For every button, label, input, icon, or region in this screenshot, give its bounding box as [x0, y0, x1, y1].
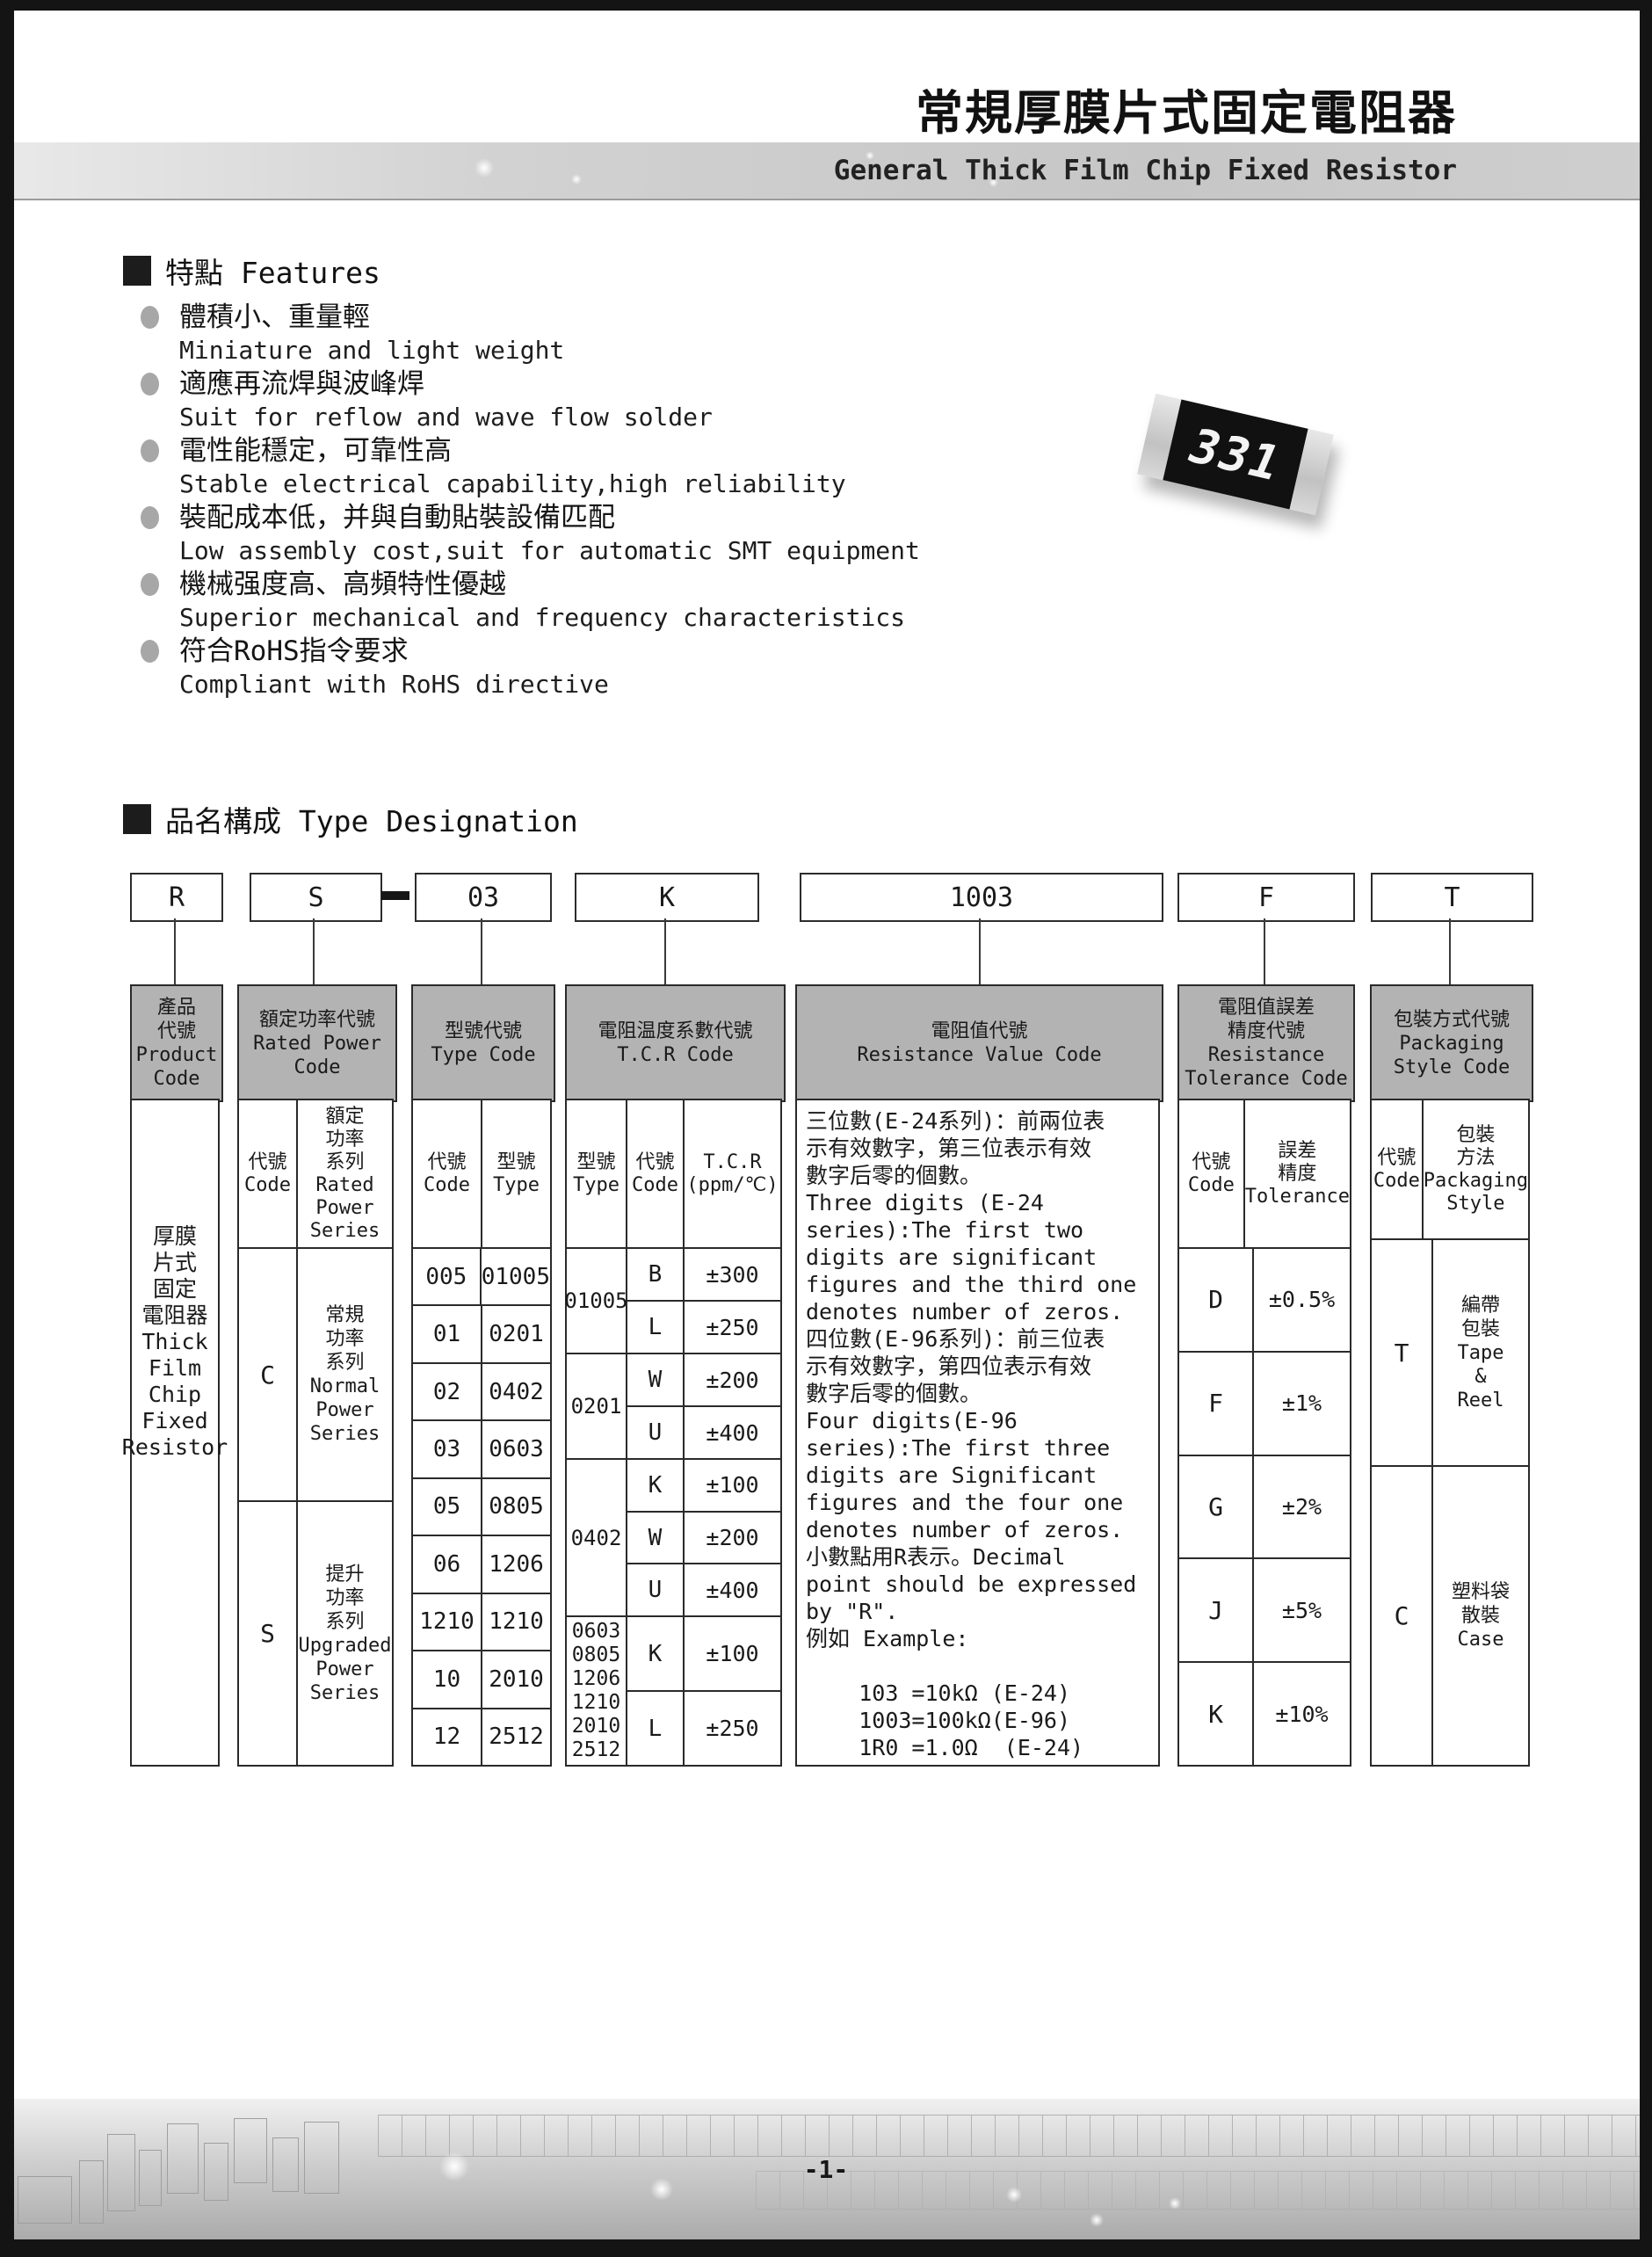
connector-line [1449, 918, 1451, 986]
col-body-tcr: 型號 Type 代號 Code T.C.R (ppm/℃) 01005 B ±3… [565, 1099, 782, 1767]
code-box-power: S [250, 873, 382, 922]
col-header-product: 產品 代號 Product Code [130, 984, 223, 1102]
tcr-value: ±100 [685, 1617, 780, 1690]
tcr-code: U [627, 1564, 685, 1615]
bullet-icon [141, 573, 159, 596]
list-item: 電性能穩定，可靠性高 Stable electrical capability,… [123, 434, 967, 501]
sparkle-dot [475, 158, 494, 178]
col-header-tolerance: 電阻值誤差 精度代號 Resistance Tolerance Code [1177, 984, 1355, 1102]
table-row: U ±400 [627, 1405, 780, 1458]
tcr-code: W [627, 1354, 685, 1405]
code-box-packaging: T [1371, 873, 1533, 922]
tcr-sub-type: 型號 Type [567, 1100, 627, 1247]
tolerance-code: F [1179, 1353, 1254, 1455]
code-box-tcr: K [575, 873, 759, 922]
tolerance-sub-tol: 誤差 精度 Tolerance [1245, 1100, 1350, 1247]
dash-separator [381, 891, 409, 900]
table-row: F ±1% [1179, 1351, 1350, 1455]
tcr-sub-value: T.C.R (ppm/℃) [685, 1100, 780, 1247]
connector-line [979, 918, 981, 986]
table-row: 12 2512 [413, 1708, 550, 1765]
tcr-type: 0402 [567, 1460, 627, 1615]
page-number: -1- [0, 2155, 1652, 2184]
type-code: 02 [413, 1364, 482, 1419]
datasheet-page: 常規厚膜片式固定電阻器 General Thick Film Chip Fixe… [0, 0, 1652, 2257]
tcr-type: 0201 [567, 1354, 627, 1458]
col-body-packaging: 代號 Code 包裝 方法 Packaging Style T 編帶 包裝 Ta… [1370, 1099, 1530, 1767]
bullet-icon [141, 373, 159, 396]
tolerance-value: ±10% [1254, 1663, 1350, 1765]
section-square-icon [123, 804, 151, 834]
tolerance-code: K [1179, 1663, 1254, 1765]
chip-resistor-image: 331 [1137, 394, 1334, 515]
connector-line [174, 918, 176, 986]
type-size: 01005 [482, 1249, 550, 1304]
table-row: 02 0402 [413, 1362, 550, 1419]
type-size: 0805 [482, 1479, 550, 1535]
table-row: J ±5% [1179, 1557, 1350, 1661]
tcr-code: U [627, 1407, 685, 1458]
tcr-value: ±300 [685, 1249, 780, 1300]
table-row: 10 2010 [413, 1650, 550, 1707]
bullet-icon [141, 306, 159, 329]
sparkle-dot [1006, 2187, 1022, 2203]
type-subheader-row: 代號 Code 型號 Type [413, 1100, 550, 1247]
table-row: 06 1206 [413, 1535, 550, 1592]
col-body-type: 代號 Code 型號 Type 005 01005 01 0201 02 040… [411, 1099, 552, 1767]
features-list: 體積小、重量輕 Miniature and light weight 適應再流焊… [123, 301, 967, 701]
features-heading-label: 特點 Features [165, 250, 380, 292]
chip-marking: 331 [1180, 418, 1291, 490]
packaging-style: 塑料袋 散裝 Case [1433, 1467, 1528, 1765]
table-row: D ±0.5% [1179, 1247, 1350, 1351]
power-series: 常規 功率 系列 Normal Power Series [298, 1249, 392, 1500]
feature-zh: 電性能穩定，可靠性高 [179, 434, 452, 468]
col-header-packaging: 包裝方式代號 Packaging Style Code [1370, 984, 1533, 1102]
packaging-code: C [1372, 1467, 1433, 1765]
type-code: 05 [413, 1479, 482, 1535]
tolerance-value: ±0.5% [1254, 1249, 1350, 1351]
power-sub-series: 額定 功率 系列 Rated Power Series [298, 1100, 392, 1247]
type-code: 06 [413, 1536, 482, 1592]
type-code: 03 [413, 1421, 482, 1477]
tolerance-value: ±1% [1254, 1353, 1350, 1455]
type-code: 10 [413, 1651, 482, 1707]
list-item: 適應再流焊與波峰焊 Suit for reflow and wave flow … [123, 367, 967, 434]
tcr-value: ±400 [685, 1564, 780, 1615]
code-box-product: R [130, 873, 223, 922]
tcr-value: ±400 [685, 1407, 780, 1458]
connector-line [1264, 918, 1265, 986]
power-code: C [239, 1249, 298, 1500]
type-designation-heading-label: 品名構成 Type Designation [165, 798, 578, 840]
sparkle-dot [1090, 2213, 1104, 2227]
tcr-code: K [627, 1460, 685, 1511]
table-row: K ±100 [627, 1617, 780, 1690]
type-size: 0201 [482, 1306, 550, 1361]
chip-body: 331 [1163, 400, 1308, 510]
connector-line [481, 918, 482, 986]
table-row: C 常規 功率 系列 Normal Power Series [239, 1247, 392, 1500]
type-code: 01 [413, 1306, 482, 1361]
packaging-code: T [1372, 1240, 1433, 1465]
bullet-icon [141, 640, 159, 663]
table-row: 03 0603 [413, 1419, 550, 1477]
packaging-sub-code: 代號 Code [1372, 1100, 1424, 1238]
type-code: 12 [413, 1709, 482, 1765]
code-box-type: 03 [415, 873, 552, 922]
footer-deco-ladder [378, 2115, 1652, 2157]
power-code: S [239, 1502, 298, 1765]
tolerance-value: ±2% [1254, 1456, 1350, 1558]
tcr-value: ±200 [685, 1354, 780, 1405]
tolerance-code: J [1179, 1559, 1254, 1661]
tcr-code: L [627, 1302, 685, 1353]
feature-en: Stable electrical capability,high reliab… [179, 468, 846, 501]
tcr-subheader-row: 型號 Type 代號 Code T.C.R (ppm/℃) [567, 1100, 780, 1247]
power-series: 提升 功率 系列 Upgraded Power Series [298, 1502, 392, 1765]
connector-line [664, 918, 666, 986]
tcr-group: 0603 0805 1206 1210 2010 2512 K ±100 L ±… [567, 1615, 780, 1765]
bullet-icon [141, 439, 159, 462]
tcr-group: 0201 W ±200 U ±400 [567, 1353, 780, 1458]
tcr-sub-code: 代號 Code [627, 1100, 685, 1247]
connector-line [313, 918, 315, 986]
type-sub-type: 型號 Type [482, 1100, 550, 1247]
type-code: 005 [413, 1249, 482, 1304]
tcr-type: 01005 [567, 1249, 627, 1353]
table-row: C 塑料袋 散裝 Case [1372, 1465, 1528, 1765]
table-row: 01 0201 [413, 1304, 550, 1361]
feature-en: Miniature and light weight [179, 334, 564, 367]
feature-en: Suit for reflow and wave flow solder [179, 401, 713, 434]
list-item: 裝配成本低，并與自動貼裝設備匹配 Low assembly cost,suit … [123, 501, 967, 568]
feature-zh: 體積小、重量輕 [179, 301, 370, 334]
feature-zh: 裝配成本低，并與自動貼裝設備匹配 [179, 501, 615, 534]
sparkle-dot [571, 174, 582, 185]
table-row: K ±10% [1179, 1661, 1350, 1765]
tcr-type: 0603 0805 1206 1210 2010 2512 [567, 1617, 627, 1765]
tolerance-code: D [1179, 1249, 1254, 1351]
type-code: 1210 [413, 1594, 482, 1650]
packaging-sub-style: 包裝 方法 Packaging Style [1424, 1100, 1528, 1238]
col-header-type: 型號代號 Type Code [411, 984, 555, 1102]
tcr-value: ±250 [685, 1302, 780, 1353]
feature-zh: 機械强度高、高頻特性優越 [179, 568, 506, 601]
table-row: G ±2% [1179, 1455, 1350, 1558]
list-item: 符合RoHS指令要求 Compliant with RoHS directive [123, 635, 967, 701]
tcr-code: W [627, 1513, 685, 1564]
col-body-tolerance: 代號 Code 誤差 精度 Tolerance D ±0.5% F ±1% G … [1177, 1099, 1351, 1767]
table-row: W ±200 [627, 1354, 780, 1405]
col-body-resistance: 三位數(E-24系列)：前兩位表 示有效數字，第三位表示有效 數字后零的個數。 … [795, 1099, 1160, 1767]
page-title: 常規厚膜片式固定電阻器 [916, 74, 1457, 143]
table-row: L ±250 [627, 1300, 780, 1353]
tcr-group: 01005 B ±300 L ±250 [567, 1247, 780, 1353]
type-size: 1210 [482, 1594, 550, 1650]
power-subheader-row: 代號 Code 額定 功率 系列 Rated Power Series [239, 1100, 392, 1247]
table-row: S 提升 功率 系列 Upgraded Power Series [239, 1500, 392, 1765]
power-sub-code: 代號 Code [239, 1100, 298, 1247]
table-row: 005 01005 [413, 1247, 550, 1304]
type-size: 0402 [482, 1364, 550, 1419]
type-size: 2010 [482, 1651, 550, 1707]
feature-en: Compliant with RoHS directive [179, 668, 609, 701]
sparkle-dot [1169, 2197, 1181, 2210]
tcr-code: B [627, 1249, 685, 1300]
packaging-subheader-row: 代號 Code 包裝 方法 Packaging Style [1372, 1100, 1528, 1238]
table-row: W ±200 [627, 1511, 780, 1564]
tolerance-code: G [1179, 1456, 1254, 1558]
table-row: U ±400 [627, 1563, 780, 1615]
feature-zh: 符合RoHS指令要求 [179, 635, 409, 668]
type-size: 2512 [482, 1709, 550, 1765]
table-row: 1210 1210 [413, 1593, 550, 1650]
list-item: 機械强度高、高頻特性優越 Superior mechanical and fre… [123, 568, 967, 635]
tcr-value: ±200 [685, 1513, 780, 1564]
list-item: 體積小、重量輕 Miniature and light weight [123, 301, 967, 367]
bullet-icon [141, 506, 159, 529]
packaging-style: 編帶 包裝 Tape & Reel [1433, 1240, 1528, 1465]
type-size: 1206 [482, 1536, 550, 1592]
feature-en: Low assembly cost,suit for automatic SMT… [179, 534, 920, 568]
tolerance-subheader-row: 代號 Code 誤差 精度 Tolerance [1179, 1100, 1350, 1247]
features-heading: 特點 Features [123, 250, 380, 292]
type-size: 0603 [482, 1421, 550, 1477]
feature-en: Superior mechanical and frequency charac… [179, 601, 905, 635]
col-body-product: 厚膜 片式 固定 電阻器 Thick Film Chip Fixed Resis… [130, 1099, 220, 1767]
table-row: B ±300 [627, 1249, 780, 1300]
type-designation-heading: 品名構成 Type Designation [123, 798, 578, 840]
page-subtitle: General Thick Film Chip Fixed Resistor [834, 155, 1457, 186]
tcr-group: 0402 K ±100 W ±200 U ±400 [567, 1458, 780, 1615]
code-box-resistance: 1003 [800, 873, 1163, 922]
tolerance-value: ±5% [1254, 1559, 1350, 1661]
feature-zh: 適應再流焊與波峰焊 [179, 367, 424, 401]
section-square-icon [123, 256, 151, 286]
tcr-code: K [627, 1617, 685, 1690]
tcr-value: ±250 [685, 1692, 780, 1765]
code-box-tolerance: F [1177, 873, 1355, 922]
table-row: 05 0805 [413, 1477, 550, 1535]
col-header-tcr: 電阻温度系數代號 T.C.R Code [565, 984, 786, 1102]
col-body-power: 代號 Code 額定 功率 系列 Rated Power Series C 常規… [237, 1099, 394, 1767]
tolerance-sub-code: 代號 Code [1179, 1100, 1245, 1247]
table-row: K ±100 [627, 1460, 780, 1511]
table-row: T 編帶 包裝 Tape & Reel [1372, 1238, 1528, 1465]
tcr-code: L [627, 1692, 685, 1765]
col-header-power: 額定功率代號 Rated Power Code [237, 984, 397, 1102]
tcr-value: ±100 [685, 1460, 780, 1511]
table-row: L ±250 [627, 1690, 780, 1765]
col-header-resistance: 電阻值代號 Resistance Value Code [795, 984, 1163, 1102]
type-sub-code: 代號 Code [413, 1100, 482, 1247]
